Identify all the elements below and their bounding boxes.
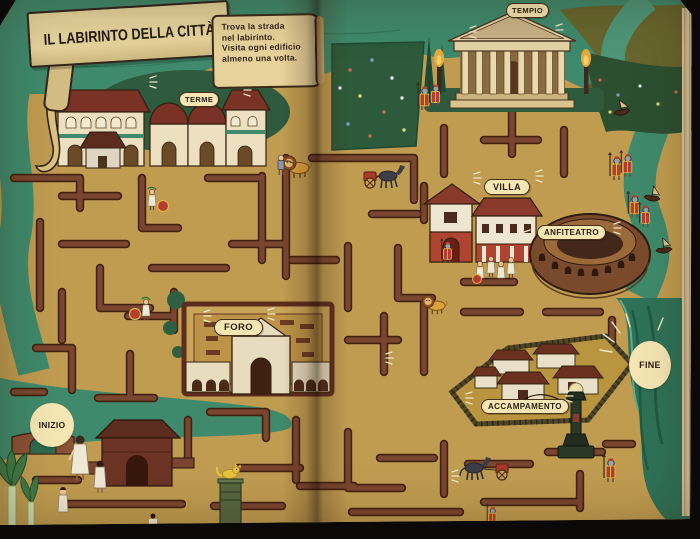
flower-garden <box>332 42 424 150</box>
instruction-line: Visita ogni edificio <box>222 41 312 53</box>
instruction-scroll: Trova la strada nel labirinto. Visita og… <box>211 13 322 89</box>
start-marker: INIZIO <box>30 403 74 447</box>
label-villa: VILLA <box>484 179 530 195</box>
end-marker: FINE <box>629 341 671 389</box>
book-photo: IL LABIRINTO DELLA CITTÀ Trova la strada… <box>0 0 700 539</box>
page-title: IL LABIRINTO DELLA CITTÀ <box>43 20 215 48</box>
label-terme: TERME <box>179 92 219 107</box>
label-accampamento: ACCAMPAMENTO <box>481 399 569 414</box>
page-edge-stack <box>682 8 691 516</box>
instruction-line: almeno una volta. <box>222 52 312 64</box>
maze-illustration <box>0 0 692 526</box>
maze-page-spread: IL LABIRINTO DELLA CITTÀ Trova la strada… <box>0 0 692 526</box>
foro-building <box>163 291 332 394</box>
label-anfiteatro: ANFITEATRO <box>537 225 606 240</box>
label-tempio: TEMPIO <box>506 3 549 18</box>
label-foro: FORO <box>214 319 263 336</box>
